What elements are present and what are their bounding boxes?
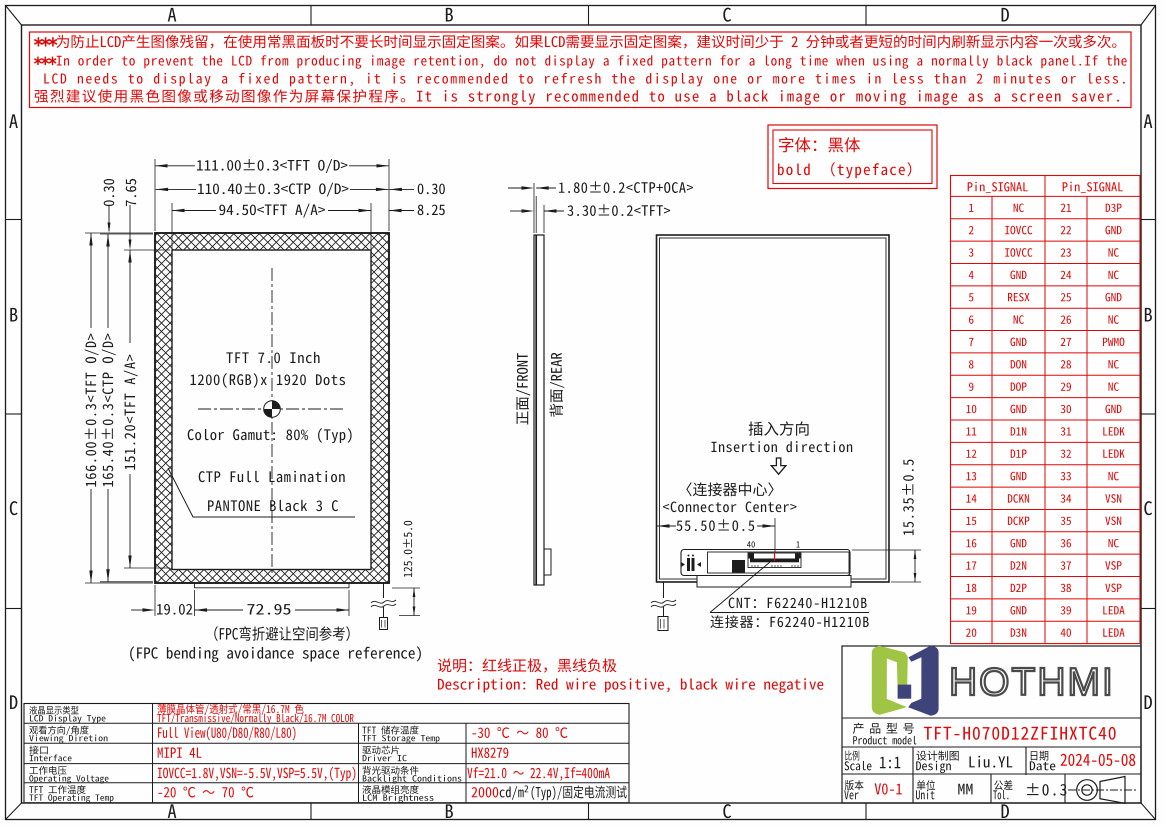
svg-text:HOTHMI: HOTHMI	[949, 661, 1115, 704]
